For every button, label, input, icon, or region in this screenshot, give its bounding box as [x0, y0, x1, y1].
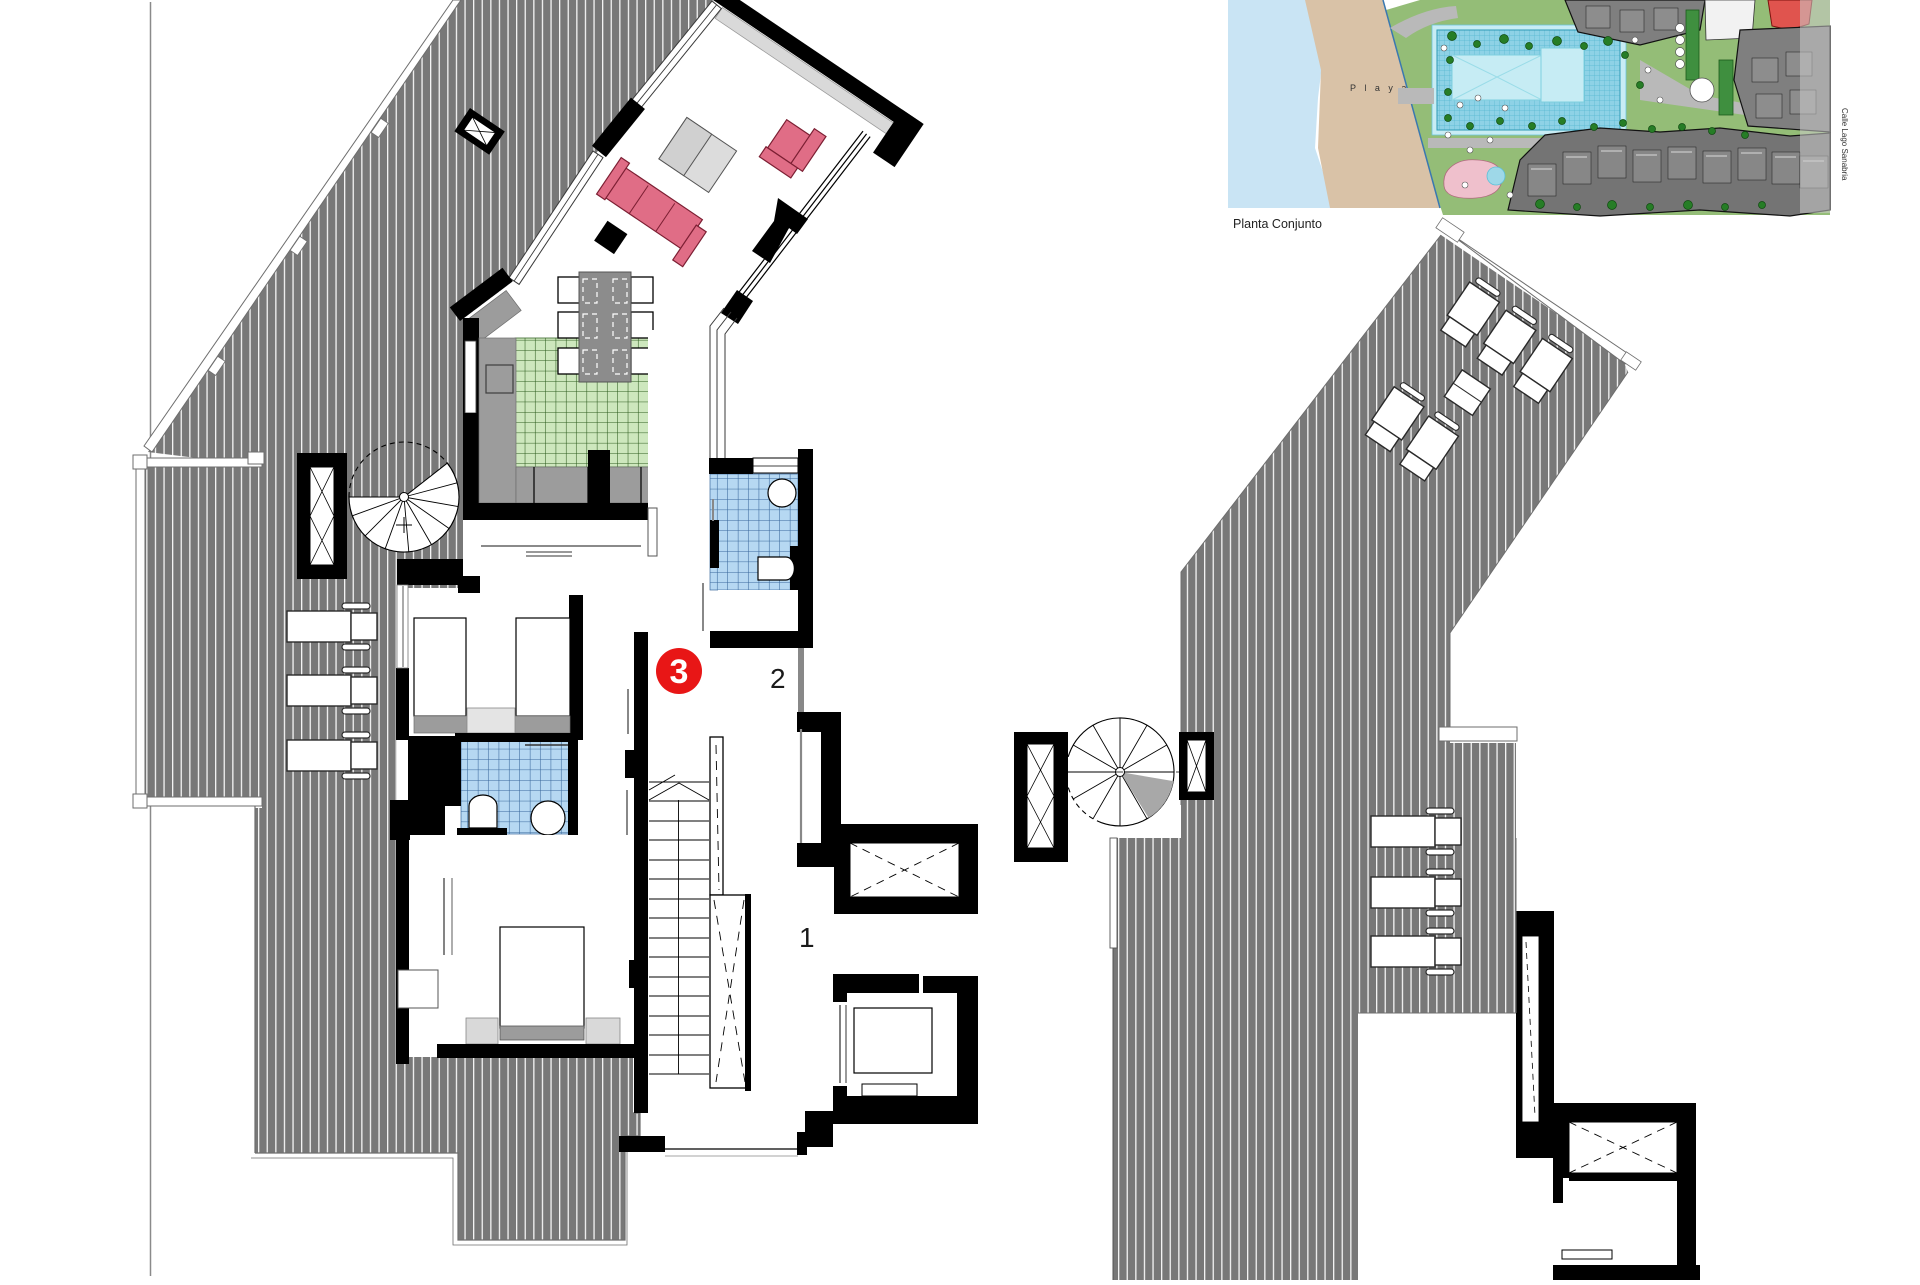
svg-text:1: 1 [799, 922, 815, 953]
svg-text:2: 2 [770, 663, 786, 694]
svg-text:Planta Conjunto: Planta Conjunto [1233, 217, 1322, 231]
svg-text:3: 3 [670, 653, 689, 691]
svg-text:Calle Lago Sanabria: Calle Lago Sanabria [1840, 108, 1849, 181]
